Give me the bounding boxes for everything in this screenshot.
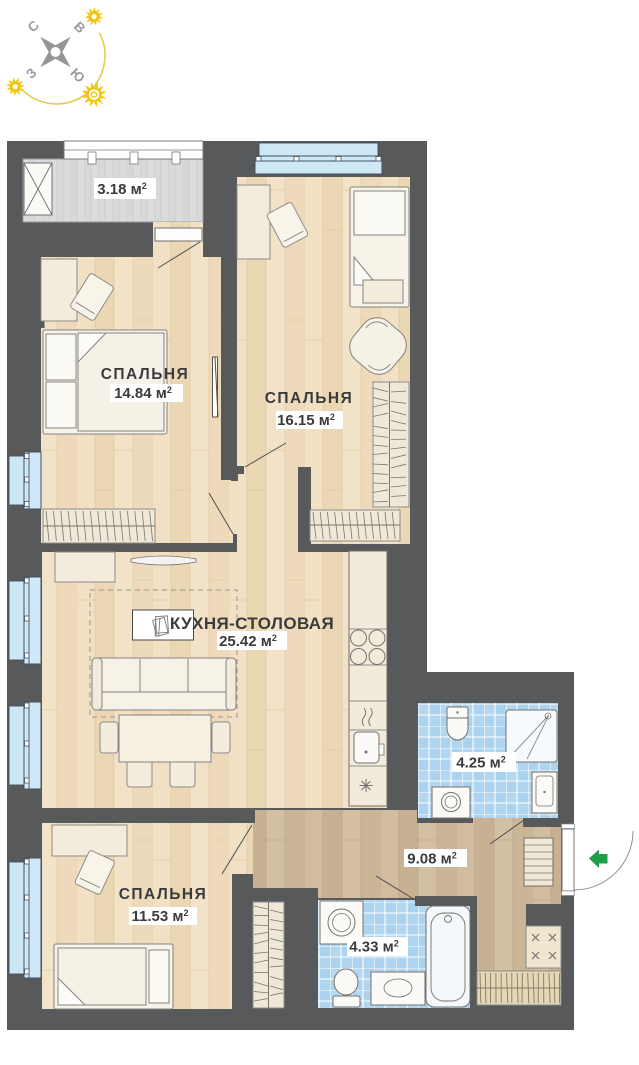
svg-text:14.84 м2: 14.84 м2 [114, 385, 172, 402]
svg-text:3.18 м2: 3.18 м2 [97, 181, 146, 198]
svg-text:КУХНЯ-СТОЛОВАЯ: КУХНЯ-СТОЛОВАЯ [170, 614, 334, 633]
svg-text:25.42 м2: 25.42 м2 [219, 633, 277, 650]
svg-text:4.25 м2: 4.25 м2 [456, 755, 505, 772]
svg-text:СПАЛЬНЯ: СПАЛЬНЯ [265, 390, 354, 407]
svg-text:СПАЛЬНЯ: СПАЛЬНЯ [101, 366, 190, 383]
svg-text:СПАЛЬНЯ: СПАЛЬНЯ [119, 886, 208, 903]
svg-text:4.33 м2: 4.33 м2 [349, 939, 398, 956]
svg-text:16.15 м2: 16.15 м2 [277, 412, 335, 429]
svg-text:9.08 м2: 9.08 м2 [407, 851, 456, 868]
svg-text:11.53 м2: 11.53 м2 [132, 908, 189, 925]
